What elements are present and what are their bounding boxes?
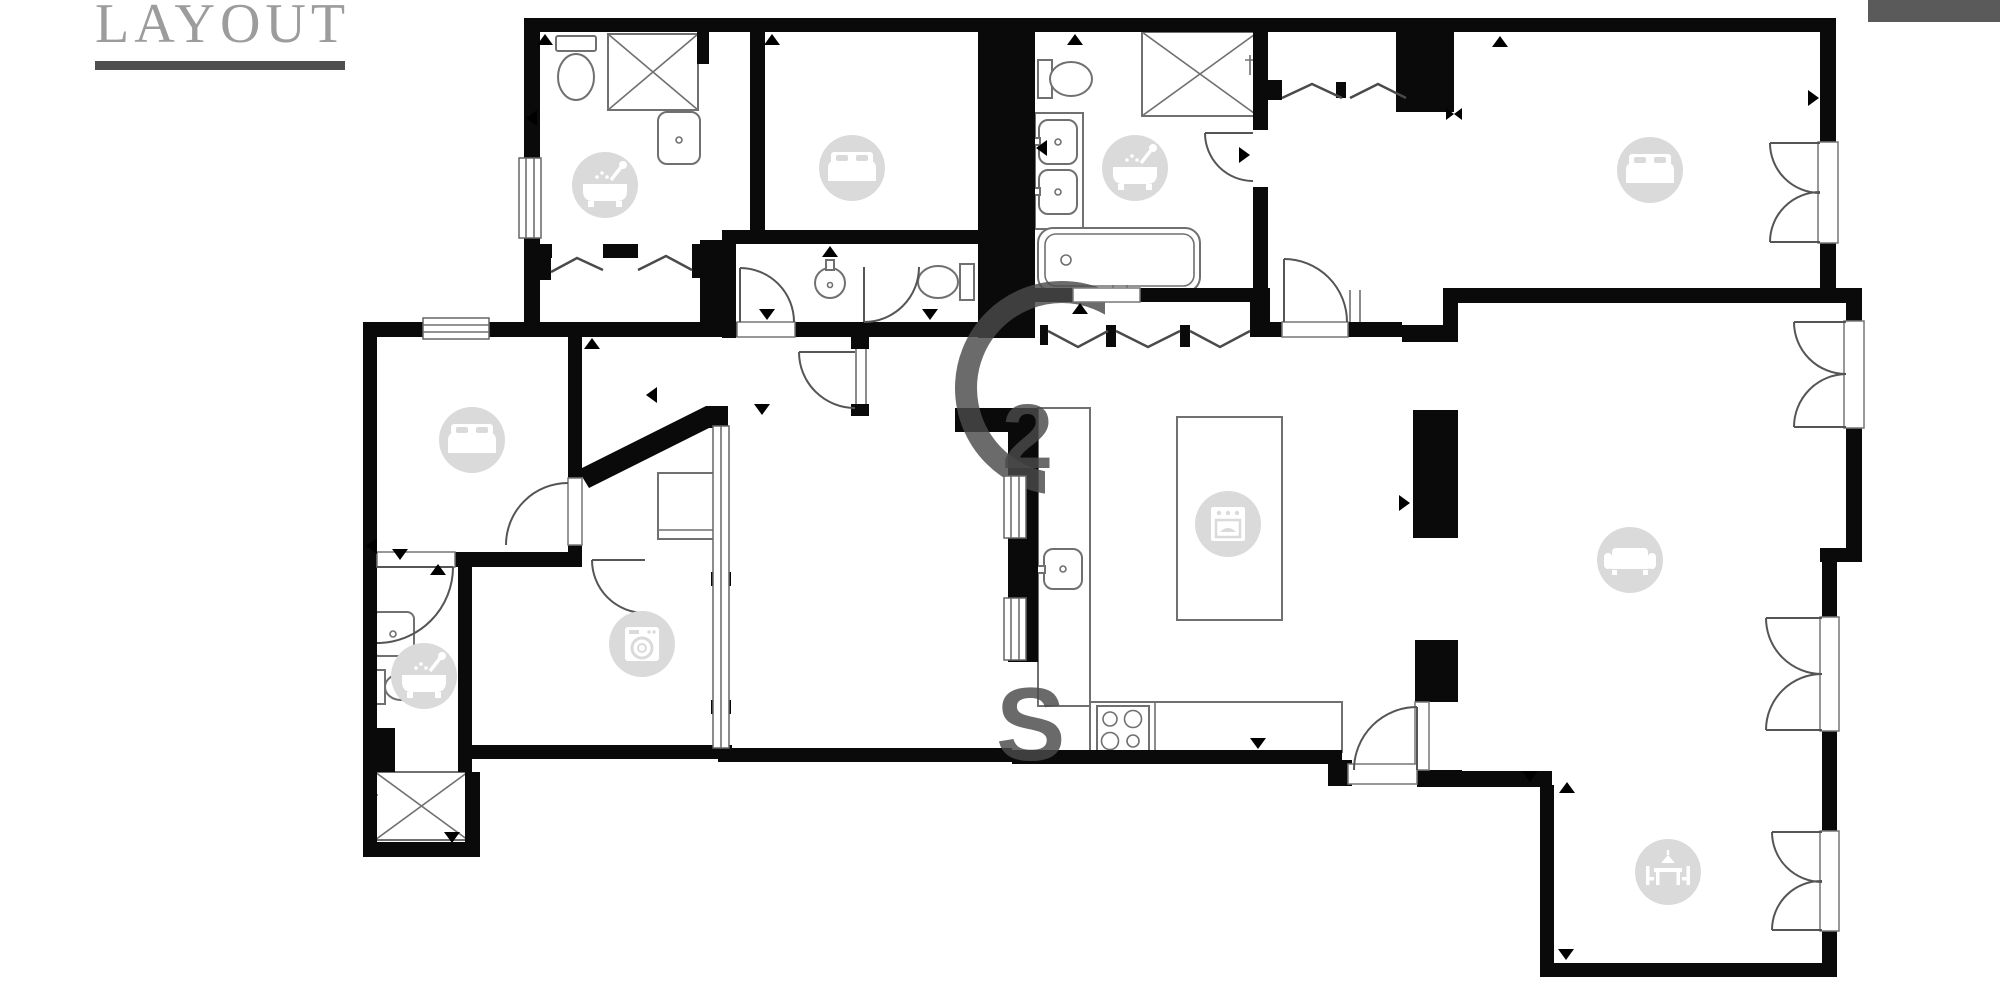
- sink: [1039, 170, 1077, 214]
- door-threshold: [1073, 288, 1140, 302]
- floor-plan-page: LAYOUT: [0, 0, 2000, 1000]
- bathtub-icon: [391, 643, 457, 709]
- window: [1004, 598, 1026, 660]
- entry-threshold: [1348, 764, 1417, 784]
- bed-icon: [1617, 137, 1683, 203]
- window: [519, 158, 541, 238]
- cabinet: [658, 473, 716, 539]
- door-swing: [1284, 259, 1347, 322]
- french-door: [1770, 143, 1820, 242]
- door-threshold: [737, 322, 795, 337]
- dining-table-icon: [1635, 839, 1701, 905]
- sink-tap: [826, 260, 834, 270]
- entry-door-swing: [1354, 707, 1417, 770]
- washing-machine-icon: [609, 611, 675, 677]
- door-swing: [799, 352, 855, 408]
- door-swing: [592, 560, 645, 613]
- bathtub-icon: [572, 152, 638, 218]
- bed-icon: [439, 407, 505, 473]
- toilet-bowl: [558, 54, 594, 100]
- window: [1004, 476, 1026, 538]
- kitchen-sink: [1044, 549, 1082, 589]
- floor-plan: 2 S: [0, 0, 2000, 1000]
- toilet-tank: [960, 264, 974, 300]
- shower: [1142, 32, 1258, 116]
- watermark-char: S: [996, 667, 1065, 783]
- shower: [370, 772, 468, 840]
- sofa-icon: [1597, 527, 1663, 593]
- oven-icon: [1195, 491, 1261, 557]
- hob: [1097, 706, 1149, 752]
- glass-partition: [713, 426, 729, 748]
- door-threshold: [1282, 322, 1348, 337]
- door-threshold: [1844, 321, 1864, 428]
- door-threshold: [377, 552, 455, 567]
- door-threshold: [1820, 831, 1839, 931]
- watermark-char: 2: [1002, 386, 1053, 488]
- door-threshold: [568, 478, 582, 545]
- french-door: [1794, 322, 1846, 427]
- toilet-bowl: [918, 266, 958, 298]
- toilet-bowl: [1050, 62, 1092, 96]
- bed-icon: [819, 135, 885, 201]
- toilet: [556, 36, 596, 51]
- french-door: [1766, 618, 1822, 730]
- bathtub-icon: [1102, 135, 1168, 201]
- cased-opening: [1350, 290, 1360, 322]
- door-swing: [864, 267, 919, 322]
- door-threshold: [1818, 142, 1838, 243]
- door-swing: [506, 483, 568, 545]
- door-threshold: [1820, 617, 1839, 731]
- window: [423, 318, 489, 339]
- cased-opening: [856, 349, 866, 404]
- shower: [608, 34, 698, 110]
- sink: [658, 112, 700, 164]
- french-door: [1772, 832, 1822, 930]
- folding-door: [551, 256, 692, 272]
